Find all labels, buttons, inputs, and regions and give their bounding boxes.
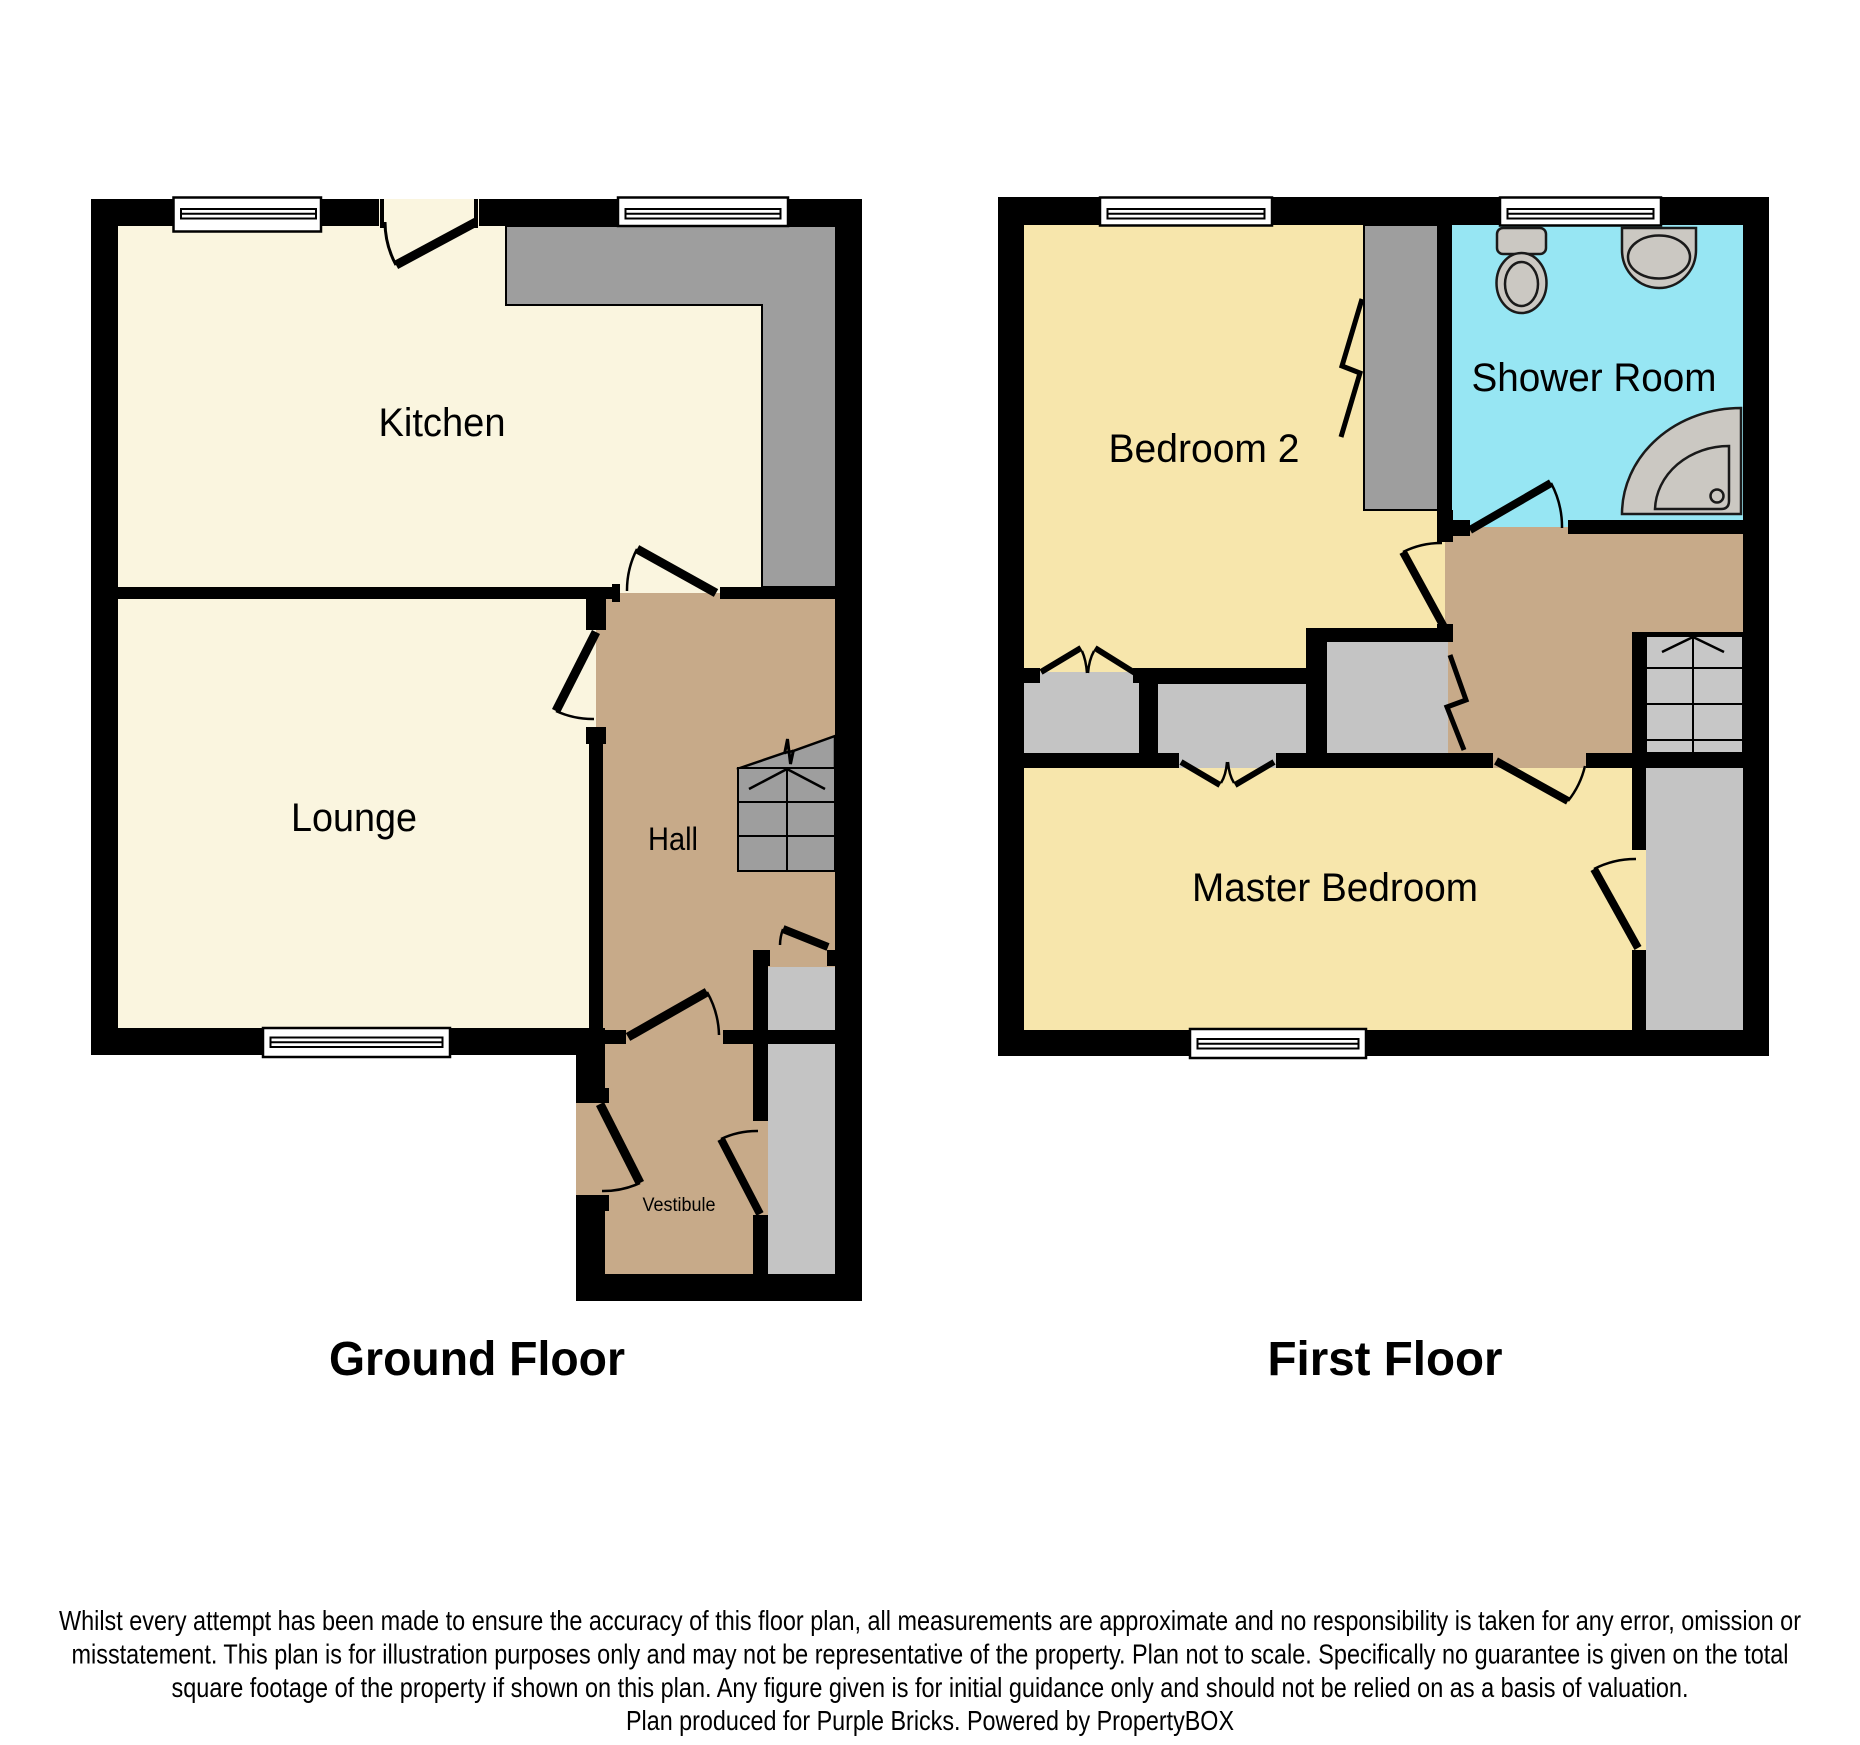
svg-text:Hall: Hall [648, 821, 698, 857]
svg-text:Kitchen: Kitchen [379, 401, 506, 445]
svg-text:Whilst every attempt has been: Whilst every attempt has been made to en… [59, 1605, 1801, 1636]
svg-text:Master Bedroom: Master Bedroom [1192, 866, 1478, 910]
svg-text:misstatement. This plan is for: misstatement. This plan is for illustrat… [72, 1638, 1789, 1669]
svg-text:First Floor: First Floor [1268, 1333, 1503, 1386]
svg-text:Plan produced for Purple Brick: Plan produced for Purple Bricks. Powered… [626, 1705, 1234, 1736]
svg-text:Ground Floor: Ground Floor [329, 1333, 625, 1386]
svg-text:square footage of the property: square footage of the property if shown … [172, 1672, 1689, 1703]
svg-text:Vestibule: Vestibule [643, 1195, 716, 1216]
svg-text:Lounge: Lounge [291, 796, 417, 840]
svg-text:Shower Room: Shower Room [1472, 356, 1717, 400]
svg-text:Bedroom 2: Bedroom 2 [1109, 427, 1300, 471]
